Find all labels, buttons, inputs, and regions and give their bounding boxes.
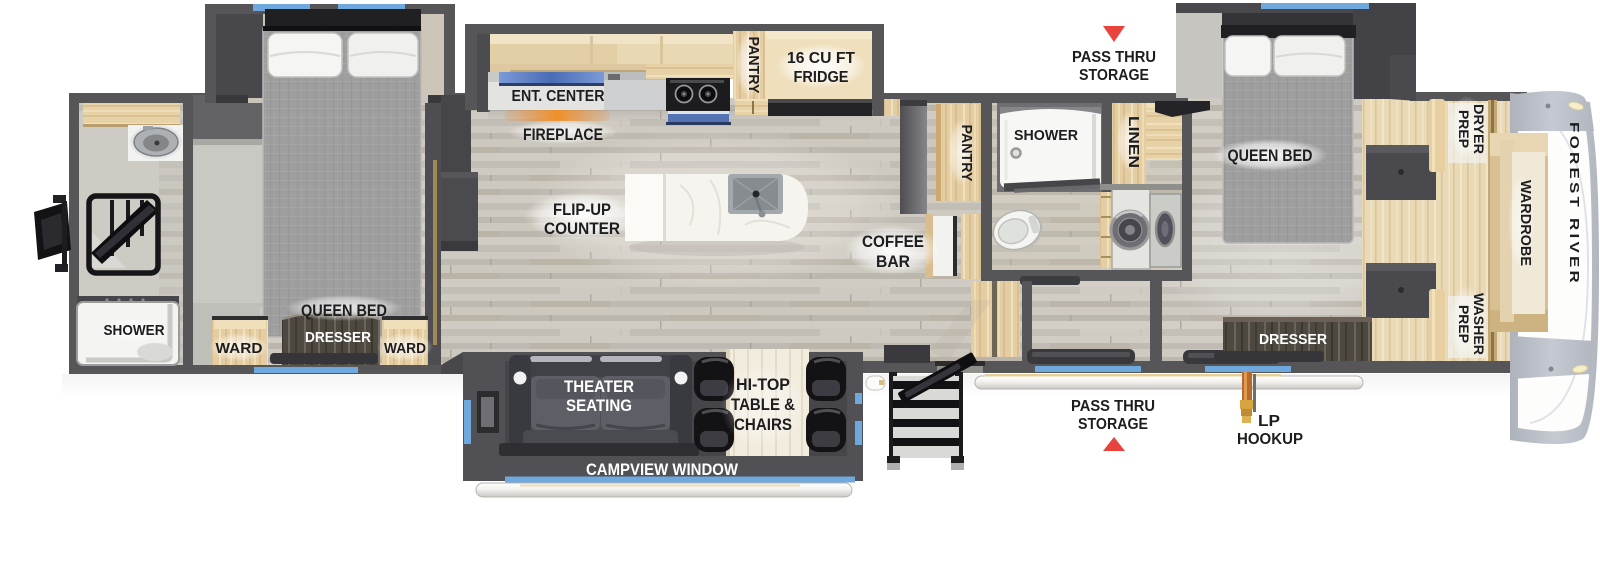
svg-text:WASHER: WASHER [1471, 293, 1487, 355]
svg-text:COUNTER: COUNTER [544, 219, 620, 238]
svg-text:QUEEN BED: QUEEN BED [1228, 146, 1313, 165]
svg-text:HOOKUP: HOOKUP [1237, 431, 1303, 448]
svg-text:DRESSER: DRESSER [1259, 332, 1328, 348]
svg-text:FIREPLACE: FIREPLACE [523, 125, 603, 144]
svg-text:FRIDGE: FRIDGE [794, 69, 849, 86]
svg-text:HI-TOP: HI-TOP [736, 376, 790, 394]
svg-text:PASS THRU: PASS THRU [1072, 49, 1156, 66]
svg-text:FOREST RIVER: FOREST RIVER [1567, 122, 1582, 286]
svg-text:WARDROBE: WARDROBE [1517, 180, 1533, 266]
svg-text:QUEEN BED: QUEEN BED [301, 301, 387, 320]
svg-text:DRESSER: DRESSER [305, 330, 371, 346]
svg-text:PREP: PREP [1456, 110, 1472, 148]
svg-text:THEATER: THEATER [564, 378, 634, 396]
svg-text:COFFEE: COFFEE [862, 232, 924, 251]
svg-text:STORAGE: STORAGE [1079, 67, 1149, 84]
svg-text:ENT. CENTER: ENT. CENTER [512, 88, 605, 105]
svg-text:FLIP-UP: FLIP-UP [553, 200, 611, 219]
svg-text:16 CU FT: 16 CU FT [787, 50, 855, 67]
svg-text:SHOWER: SHOWER [104, 322, 165, 339]
svg-text:STORAGE: STORAGE [1078, 416, 1148, 433]
svg-text:SEATING: SEATING [566, 397, 632, 415]
svg-text:WARD: WARD [384, 341, 426, 357]
svg-text:PREP: PREP [1456, 305, 1472, 343]
svg-text:PANTRY: PANTRY [958, 125, 975, 182]
svg-text:CAMPVIEW WINDOW: CAMPVIEW WINDOW [586, 460, 739, 479]
svg-text:PASS THRU: PASS THRU [1071, 398, 1155, 415]
svg-text:CHAIRS: CHAIRS [734, 416, 792, 434]
svg-text:WARD: WARD [216, 341, 263, 357]
svg-text:PANTRY: PANTRY [745, 37, 762, 94]
svg-text:LP: LP [1258, 413, 1280, 430]
svg-text:DRYER: DRYER [1471, 104, 1487, 154]
svg-text:BAR: BAR [876, 252, 910, 271]
svg-text:SHOWER: SHOWER [1014, 127, 1078, 144]
svg-text:LINEN: LINEN [1125, 116, 1142, 168]
svg-text:TABLE &: TABLE & [731, 396, 795, 414]
